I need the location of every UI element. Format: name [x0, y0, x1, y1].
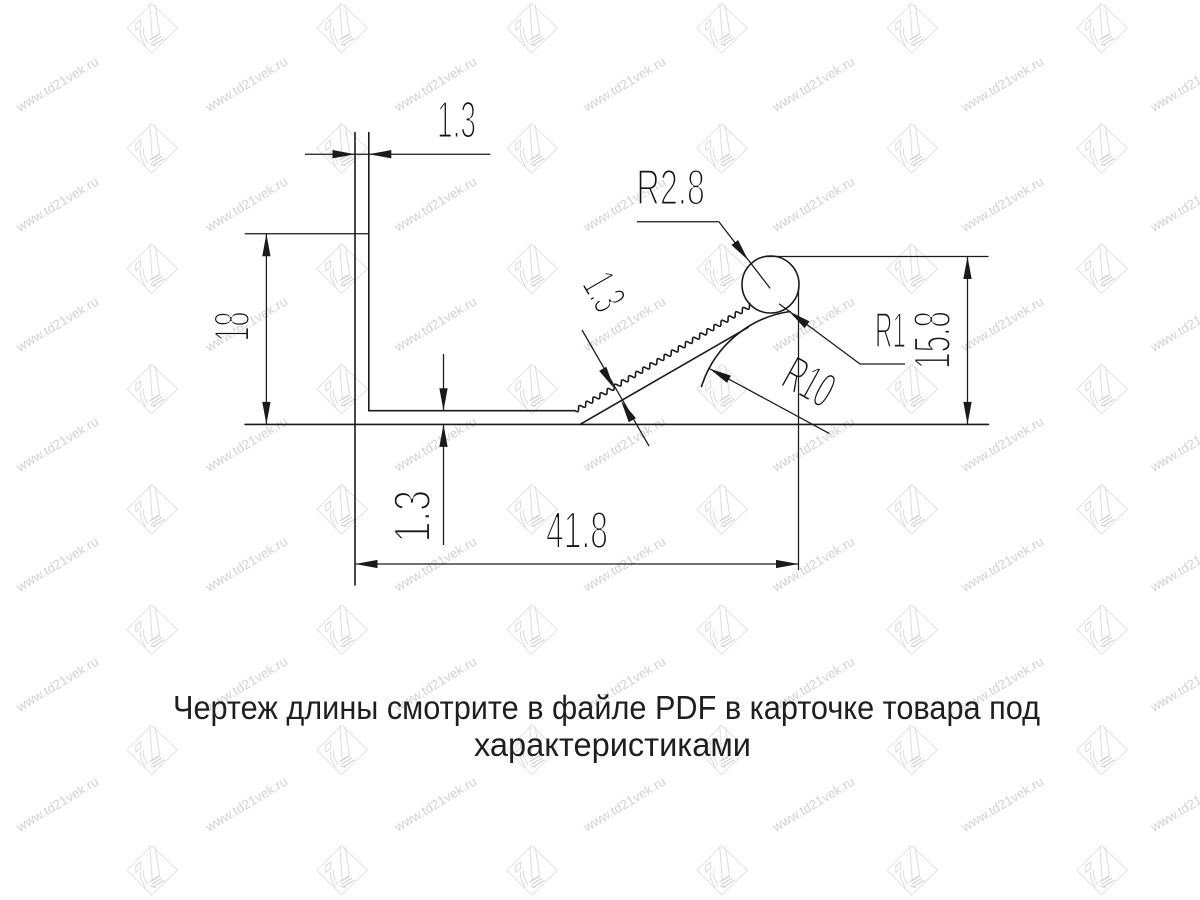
- svg-text:1.3: 1.3: [384, 490, 442, 543]
- svg-text:Чертеж длины смотрите в файле: Чертеж длины смотрите в файле PDF в карт…: [173, 689, 1040, 726]
- svg-text:R1: R1: [875, 303, 906, 359]
- svg-text:R2.8: R2.8: [636, 159, 705, 215]
- svg-text:18: 18: [204, 312, 260, 342]
- svg-text:15.8: 15.8: [903, 311, 961, 369]
- svg-text:1.3: 1.3: [571, 263, 635, 321]
- svg-text:1.3: 1.3: [437, 91, 476, 149]
- svg-text:41.8: 41.8: [546, 502, 608, 560]
- svg-text:характеристиками: характеристиками: [474, 726, 751, 763]
- svg-text:R10: R10: [774, 345, 845, 418]
